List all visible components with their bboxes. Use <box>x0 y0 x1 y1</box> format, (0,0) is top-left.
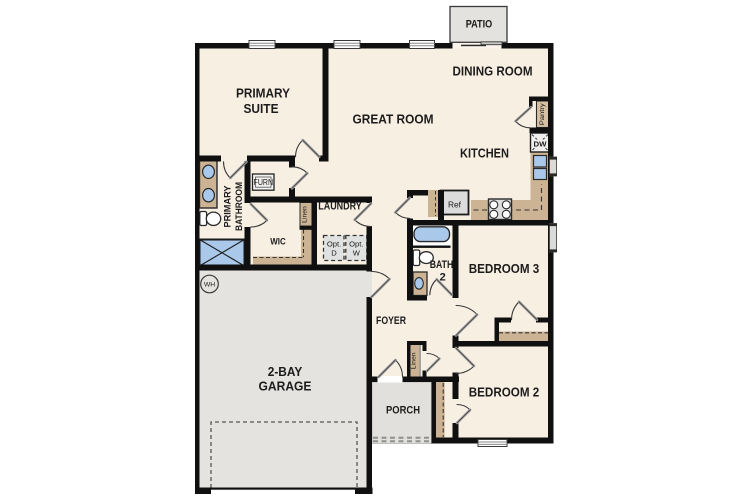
svg-text:Ref: Ref <box>448 199 462 209</box>
svg-text:BEDROOM 3: BEDROOM 3 <box>469 262 540 276</box>
svg-text:D: D <box>331 249 337 258</box>
svg-text:Linen: Linen <box>410 352 417 369</box>
svg-text:W: W <box>353 249 361 258</box>
svg-text:Linen: Linen <box>302 206 309 223</box>
svg-text:SUITE: SUITE <box>244 102 279 116</box>
svg-text:Opt.: Opt. <box>327 240 341 249</box>
svg-text:PRIMARY: PRIMARY <box>223 185 234 228</box>
svg-text:Pantry: Pantry <box>539 103 546 126</box>
svg-text:BEDROOM 2: BEDROOM 2 <box>469 385 540 399</box>
svg-text:BATHROOM: BATHROOM <box>234 182 245 231</box>
svg-text:KITCHEN: KITCHEN <box>460 146 509 161</box>
svg-text:DINING ROOM: DINING ROOM <box>453 64 533 79</box>
svg-text:WIC: WIC <box>270 236 286 246</box>
svg-text:GREAT ROOM: GREAT ROOM <box>353 112 434 127</box>
svg-text:PORCH: PORCH <box>386 404 420 416</box>
svg-text:WH: WH <box>204 282 215 289</box>
svg-text:2-BAY: 2-BAY <box>268 365 303 379</box>
svg-text:GARAGE: GARAGE <box>259 380 312 394</box>
svg-text:Opt.: Opt. <box>349 240 363 249</box>
svg-text:PATIO: PATIO <box>466 19 493 31</box>
svg-text:PRIMARY: PRIMARY <box>236 86 291 100</box>
svg-text:BATH: BATH <box>430 259 454 271</box>
svg-text:2: 2 <box>440 271 446 283</box>
svg-text:LAUNDRY: LAUNDRY <box>318 200 362 212</box>
svg-text:FOYER: FOYER <box>376 315 406 327</box>
svg-text:DW: DW <box>534 139 548 148</box>
svg-text:FURN: FURN <box>254 178 274 187</box>
